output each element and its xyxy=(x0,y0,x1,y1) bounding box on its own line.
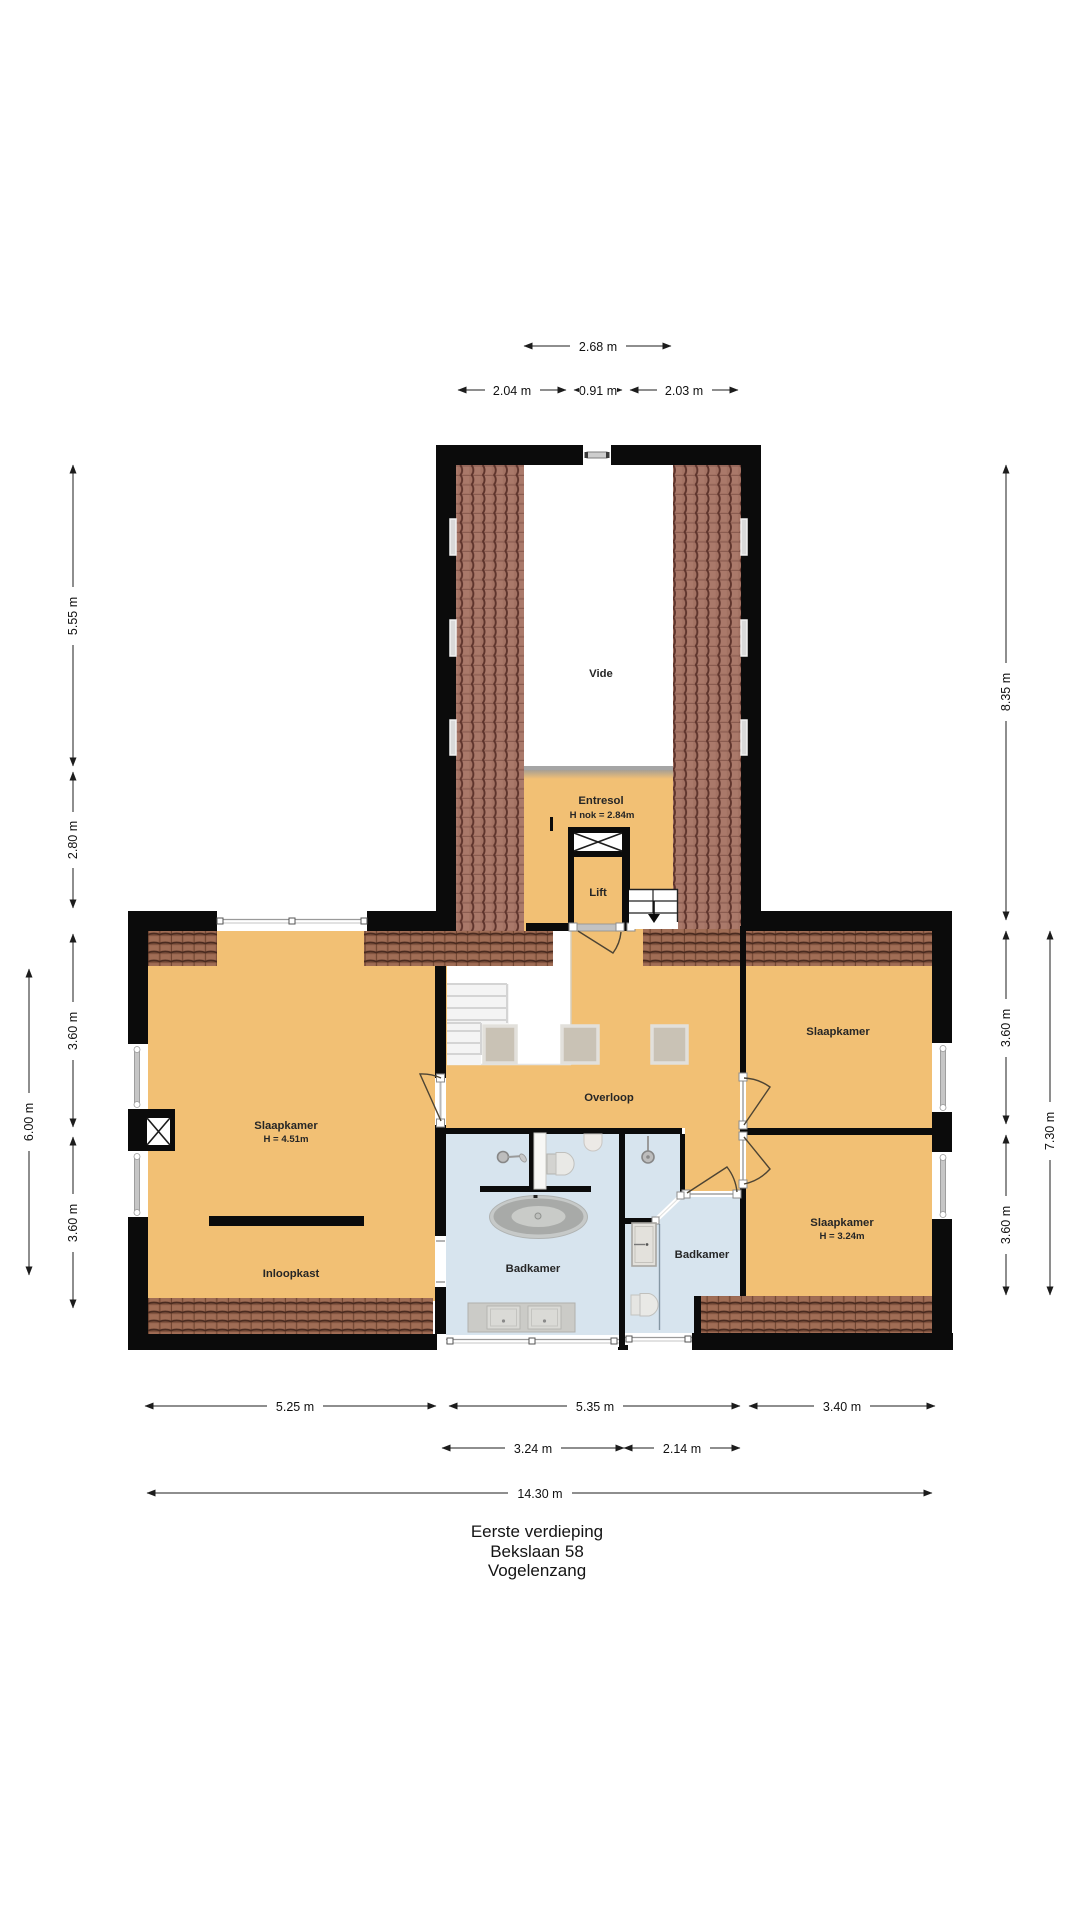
svg-text:3.60 m: 3.60 m xyxy=(999,1206,1013,1244)
svg-text:0.91 m: 0.91 m xyxy=(579,384,617,398)
svg-text:2.14 m: 2.14 m xyxy=(663,1442,701,1456)
svg-text:14.30 m: 14.30 m xyxy=(517,1487,562,1501)
svg-text:Slaapkamer: Slaapkamer xyxy=(806,1026,870,1038)
svg-text:H = 3.24m: H = 3.24m xyxy=(819,1231,864,1242)
svg-text:Lift: Lift xyxy=(589,887,607,899)
svg-text:Badkamer: Badkamer xyxy=(675,1249,730,1261)
svg-text:Vide: Vide xyxy=(589,668,613,680)
svg-text:Eerste verdieping: Eerste verdieping xyxy=(471,1522,603,1541)
svg-text:6.00 m: 6.00 m xyxy=(22,1103,36,1141)
svg-text:H nok = 2.84m: H nok = 2.84m xyxy=(570,810,635,821)
svg-text:5.35 m: 5.35 m xyxy=(576,1400,614,1414)
svg-text:Vogelenzang: Vogelenzang xyxy=(488,1561,586,1580)
svg-text:2.04 m: 2.04 m xyxy=(493,384,531,398)
svg-text:Slaapkamer: Slaapkamer xyxy=(810,1217,874,1229)
svg-text:3.24 m: 3.24 m xyxy=(514,1442,552,1456)
svg-text:3.40 m: 3.40 m xyxy=(823,1400,861,1414)
svg-text:Bekslaan 58: Bekslaan 58 xyxy=(490,1542,584,1561)
svg-text:3.60 m: 3.60 m xyxy=(66,1204,80,1242)
svg-text:3.60 m: 3.60 m xyxy=(999,1009,1013,1047)
svg-text:5.55 m: 5.55 m xyxy=(66,597,80,635)
svg-text:Inloopkast: Inloopkast xyxy=(263,1268,320,1280)
svg-text:8.35 m: 8.35 m xyxy=(999,673,1013,711)
svg-text:Badkamer: Badkamer xyxy=(506,1263,561,1275)
svg-text:2.68 m: 2.68 m xyxy=(579,340,617,354)
svg-text:2.03 m: 2.03 m xyxy=(665,384,703,398)
svg-text:H = 4.51m: H = 4.51m xyxy=(263,1134,308,1145)
svg-text:3.60 m: 3.60 m xyxy=(66,1012,80,1050)
svg-text:Slaapkamer: Slaapkamer xyxy=(254,1120,318,1132)
svg-text:2.80 m: 2.80 m xyxy=(66,821,80,859)
svg-text:Overloop: Overloop xyxy=(584,1092,634,1104)
svg-text:7.30 m: 7.30 m xyxy=(1043,1112,1057,1150)
svg-text:5.25 m: 5.25 m xyxy=(276,1400,314,1414)
svg-text:Entresol: Entresol xyxy=(578,795,623,807)
